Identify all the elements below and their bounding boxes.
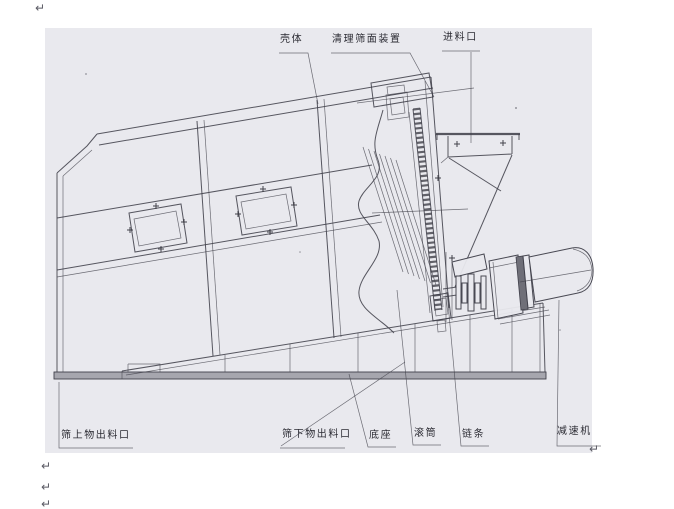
- paragraph-mark-icon: ↵: [589, 443, 599, 455]
- label-feed-inlet: 进料口: [443, 32, 478, 44]
- label-drum: 滚筒: [414, 428, 437, 440]
- label-screen-cleaning-device: 清理筛面装置: [332, 34, 402, 46]
- paragraph-mark-icon: ↵: [35, 2, 45, 14]
- label-undersize-outlet: 筛下物出料口: [282, 429, 352, 441]
- paragraph-mark-icon: ↵: [41, 481, 51, 493]
- label-reducer: 减速机: [557, 426, 592, 438]
- document-page: 壳体 清理筛面装置 进料口 筛上物出料口 筛下物出料口 底座 滚筒 链条 减速机…: [0, 0, 674, 509]
- label-shell: 壳体: [280, 34, 303, 46]
- paragraph-mark-icon: ↵: [41, 460, 51, 472]
- label-oversize-outlet: 筛上物出料口: [61, 430, 131, 442]
- scan-region: [45, 28, 592, 453]
- coupling-discs: [456, 274, 486, 311]
- label-chain: 链条: [462, 429, 485, 441]
- label-base: 底座: [369, 430, 392, 442]
- paragraph-mark-icon: ↵: [41, 498, 51, 509]
